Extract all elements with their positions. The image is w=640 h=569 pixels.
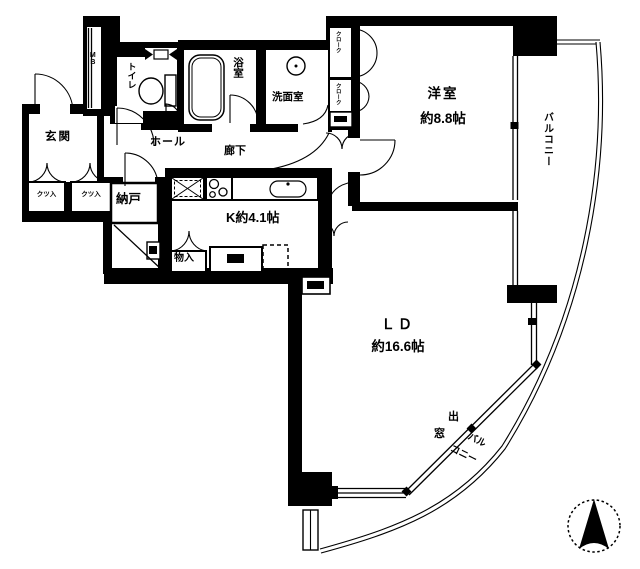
north-compass [568,499,620,552]
label-bathroom: 浴室 [232,57,243,78]
label-kitchen: K約4.1帖 [226,211,279,225]
label-corridor: 廊下 [224,146,246,158]
label-cloak-upper: クローク [334,31,340,53]
label-meter-box: MB [89,52,96,66]
label-storage-room: 納戸 [116,193,141,206]
label-hall: ホール [150,137,186,149]
label-living-dining: ＬＤ [348,317,448,332]
label-cloak-lower: クローク [334,83,340,105]
label-bay-window-1: 出 [448,412,459,424]
label-washroom: 洗面室 [272,92,304,103]
label-bedroom: 洋室 [388,87,498,101]
label-living-dining-size: 約16.6帖 [348,340,448,354]
label-toilet: トイレ [126,62,135,89]
label-bedroom-size: 約8.8帖 [388,112,498,126]
floor-plan: MB トイレ 浴室 洗面室 玄関 ホール 廊下 納戸 クツ入 クツ入 クローク … [0,0,640,569]
label-bay-window-2: 窓 [434,429,445,441]
label-entrance: 玄関 [45,131,72,143]
floorplan-geometry [0,0,640,569]
label-shoe-box-right: クツ入 [74,192,108,199]
label-closet: 物入 [174,254,194,265]
label-shoe-box-left: クツ入 [30,192,63,199]
label-balcony-side: バルコニー [541,112,552,167]
